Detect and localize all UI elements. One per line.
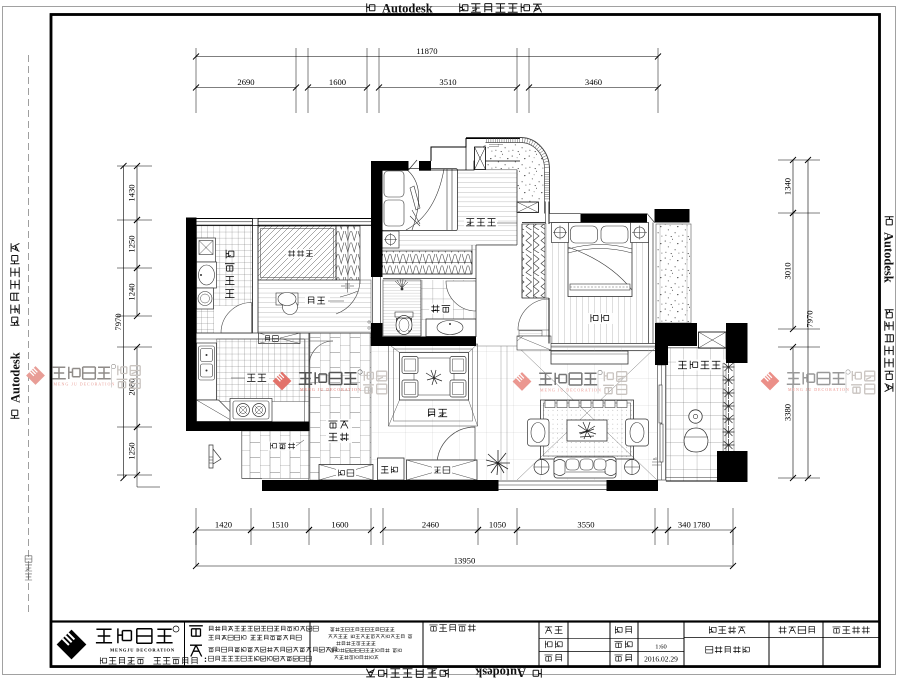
svg-text:1510: 1510 xyxy=(271,520,288,530)
svg-text:a0: a0 xyxy=(653,457,657,461)
svg-text:11870: 11870 xyxy=(416,46,437,56)
svg-text:1340: 1340 xyxy=(783,178,793,195)
svg-text:MENGJU DECORATION: MENGJU DECORATION xyxy=(110,648,175,653)
svg-text:7970: 7970 xyxy=(805,310,815,327)
svg-text:1250: 1250 xyxy=(127,235,137,252)
svg-text:1600: 1600 xyxy=(329,77,346,87)
svg-text:3380: 3380 xyxy=(783,404,793,421)
svg-text:1:60: 1:60 xyxy=(655,644,667,651)
svg-text:Autodesk: Autodesk xyxy=(882,232,896,283)
svg-text:3010: 3010 xyxy=(783,262,793,279)
svg-text:3510: 3510 xyxy=(439,77,456,87)
svg-text:340 1780: 340 1780 xyxy=(678,520,710,530)
svg-text:1240: 1240 xyxy=(127,283,137,300)
svg-text:2460: 2460 xyxy=(422,520,439,530)
svg-text:13950: 13950 xyxy=(454,556,475,566)
svg-text:MENG JU DECORATION: MENG JU DECORATION xyxy=(300,387,362,392)
svg-text:MENG JU DECORATION: MENG JU DECORATION xyxy=(540,388,602,393)
svg-text:1250: 1250 xyxy=(127,442,137,459)
svg-text::: : xyxy=(204,654,207,664)
svg-text:2080: 2080 xyxy=(127,378,137,395)
svg-text:2690: 2690 xyxy=(237,77,254,87)
svg-text:1430: 1430 xyxy=(127,184,137,201)
svg-text:Autodesk: Autodesk xyxy=(9,352,23,403)
svg-text:2016.02.29: 2016.02.29 xyxy=(644,655,678,664)
svg-text:1600: 1600 xyxy=(331,520,348,530)
svg-text:1050: 1050 xyxy=(489,520,506,530)
svg-text:3460: 3460 xyxy=(585,77,602,87)
svg-text:1420: 1420 xyxy=(215,520,232,530)
svg-text:3550: 3550 xyxy=(577,520,594,530)
svg-text:MENG JU DECORATION: MENG JU DECORATION xyxy=(788,387,850,392)
svg-text:MENG JU DECORATION: MENG JU DECORATION xyxy=(54,382,116,387)
